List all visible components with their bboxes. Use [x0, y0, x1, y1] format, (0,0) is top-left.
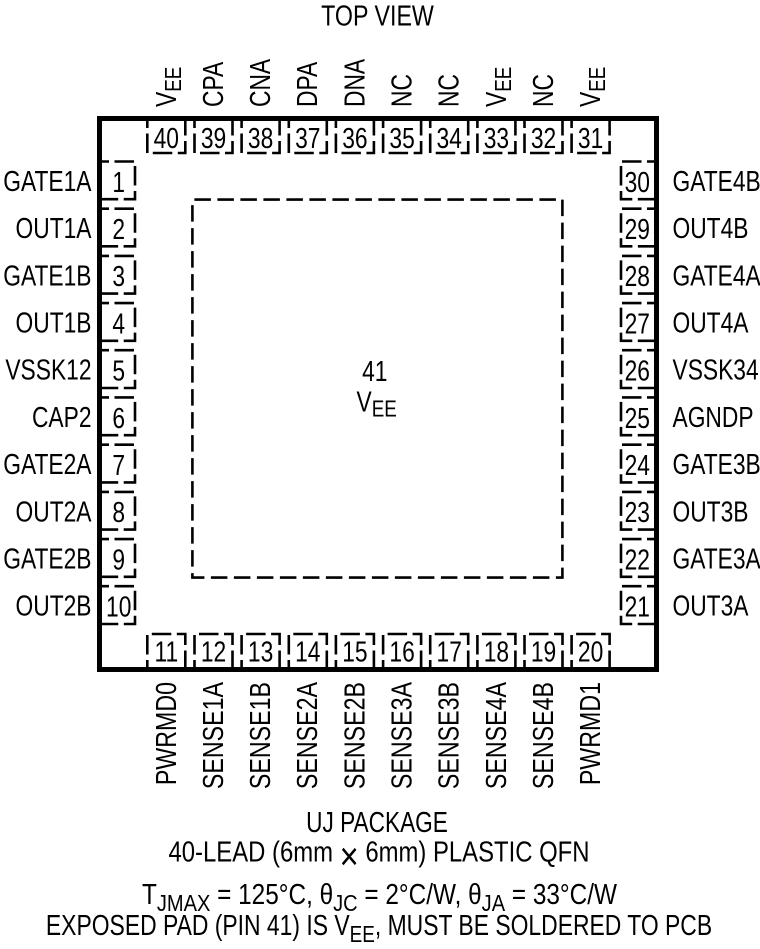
svg-text:OUT4A: OUT4A [673, 308, 750, 339]
svg-text:31: 31 [578, 124, 603, 155]
svg-text:VEE: VEE [357, 387, 397, 421]
svg-text:NC: NC [529, 74, 560, 107]
svg-text:28: 28 [625, 262, 650, 293]
svg-text:TOP VIEW: TOP VIEW [321, 0, 434, 32]
svg-text:PWRMD1: PWRMD1 [574, 682, 607, 785]
svg-text:NC: NC [434, 74, 465, 107]
svg-text:NC: NC [387, 74, 418, 107]
svg-text:19: 19 [531, 637, 556, 668]
svg-text:21: 21 [625, 592, 650, 623]
svg-text:40: 40 [154, 124, 179, 155]
svg-text:GATE1B: GATE1B [3, 261, 91, 292]
svg-text:GATE3B: GATE3B [673, 450, 760, 481]
svg-text:VEE: VEE [152, 67, 187, 107]
svg-text:SENSE2B: SENSE2B [338, 682, 371, 789]
svg-text:SENSE2A: SENSE2A [291, 681, 324, 789]
svg-text:GATE4A: GATE4A [673, 261, 760, 292]
svg-text:VEE: VEE [482, 67, 517, 107]
svg-text:37: 37 [295, 124, 320, 155]
svg-text:23: 23 [625, 498, 650, 529]
svg-text:25: 25 [625, 404, 650, 435]
svg-text:15: 15 [342, 637, 367, 668]
svg-text:OUT2A: OUT2A [16, 497, 93, 528]
svg-text:1: 1 [112, 168, 125, 199]
svg-text:PWRMD0: PWRMD0 [149, 682, 182, 785]
svg-text:18: 18 [484, 637, 509, 668]
svg-text:35: 35 [389, 124, 414, 155]
svg-text:AGNDP: AGNDP [673, 403, 754, 434]
svg-text:22: 22 [625, 545, 650, 576]
svg-text:34: 34 [437, 124, 462, 155]
svg-text:20: 20 [578, 637, 603, 668]
svg-text:10: 10 [106, 592, 131, 623]
svg-text:27: 27 [625, 309, 650, 340]
svg-text:17: 17 [437, 637, 462, 668]
svg-text:OUT2B: OUT2B [16, 591, 92, 622]
svg-text:32: 32 [531, 124, 556, 155]
svg-text:OUT4B: OUT4B [673, 214, 749, 245]
svg-text:12: 12 [201, 637, 226, 668]
svg-text:OUT3A: OUT3A [673, 591, 750, 622]
svg-text:UJ PACKAGE: UJ PACKAGE [306, 808, 448, 839]
svg-text:36: 36 [342, 124, 367, 155]
svg-text:SENSE3A: SENSE3A [385, 681, 418, 789]
svg-text:30: 30 [625, 168, 650, 199]
svg-text:VSSK12: VSSK12 [5, 355, 91, 386]
svg-text:5: 5 [112, 356, 125, 387]
svg-text:SENSE1A: SENSE1A [197, 681, 230, 789]
svg-text:40-LEAD (6mm × 6mm) PLASTIC QF: 40-LEAD (6mm × 6mm) PLASTIC QFN [168, 834, 589, 878]
svg-text:7: 7 [112, 451, 125, 482]
svg-text:VSSK34: VSSK34 [673, 355, 759, 386]
svg-text:OUT1A: OUT1A [16, 214, 93, 245]
svg-text:16: 16 [389, 637, 414, 668]
svg-text:GATE2A: GATE2A [3, 450, 92, 481]
svg-text:26: 26 [625, 356, 650, 387]
svg-text:8: 8 [112, 498, 125, 529]
svg-text:2: 2 [112, 215, 125, 246]
svg-text:29: 29 [625, 215, 650, 246]
svg-text:24: 24 [625, 451, 650, 482]
svg-text:OUT1B: OUT1B [16, 308, 92, 339]
svg-text:39: 39 [201, 124, 226, 155]
svg-text:13: 13 [248, 637, 273, 668]
svg-text:14: 14 [295, 637, 320, 668]
svg-text:3: 3 [112, 262, 125, 293]
svg-text:6: 6 [112, 404, 125, 435]
svg-text:OUT3B: OUT3B [673, 497, 749, 528]
svg-text:GATE1A: GATE1A [3, 167, 92, 198]
svg-text:SENSE4B: SENSE4B [527, 682, 560, 789]
svg-text:SENSE4A: SENSE4A [480, 681, 513, 789]
svg-text:41: 41 [362, 357, 387, 388]
svg-text:SENSE1B: SENSE1B [244, 682, 277, 789]
svg-text:9: 9 [112, 545, 125, 576]
svg-text:DPA: DPA [293, 61, 324, 107]
svg-text:38: 38 [248, 124, 273, 155]
svg-text:CNA: CNA [246, 58, 277, 107]
svg-text:CAP2: CAP2 [32, 403, 92, 434]
svg-text:11: 11 [154, 637, 178, 668]
svg-text:4: 4 [112, 309, 125, 340]
svg-text:EXPOSED PAD (PIN 41) IS VEE, M: EXPOSED PAD (PIN 41) IS VEE, MUST BE SOL… [46, 911, 712, 948]
svg-text:GATE3A: GATE3A [673, 544, 760, 575]
svg-text:GATE2B: GATE2B [3, 544, 91, 575]
svg-text:CPA: CPA [199, 61, 230, 107]
svg-text:DNA: DNA [340, 58, 371, 107]
svg-text:VEE: VEE [576, 67, 611, 107]
svg-text:GATE4B: GATE4B [673, 167, 760, 198]
svg-text:SENSE3B: SENSE3B [432, 682, 465, 789]
svg-text:33: 33 [484, 124, 509, 155]
